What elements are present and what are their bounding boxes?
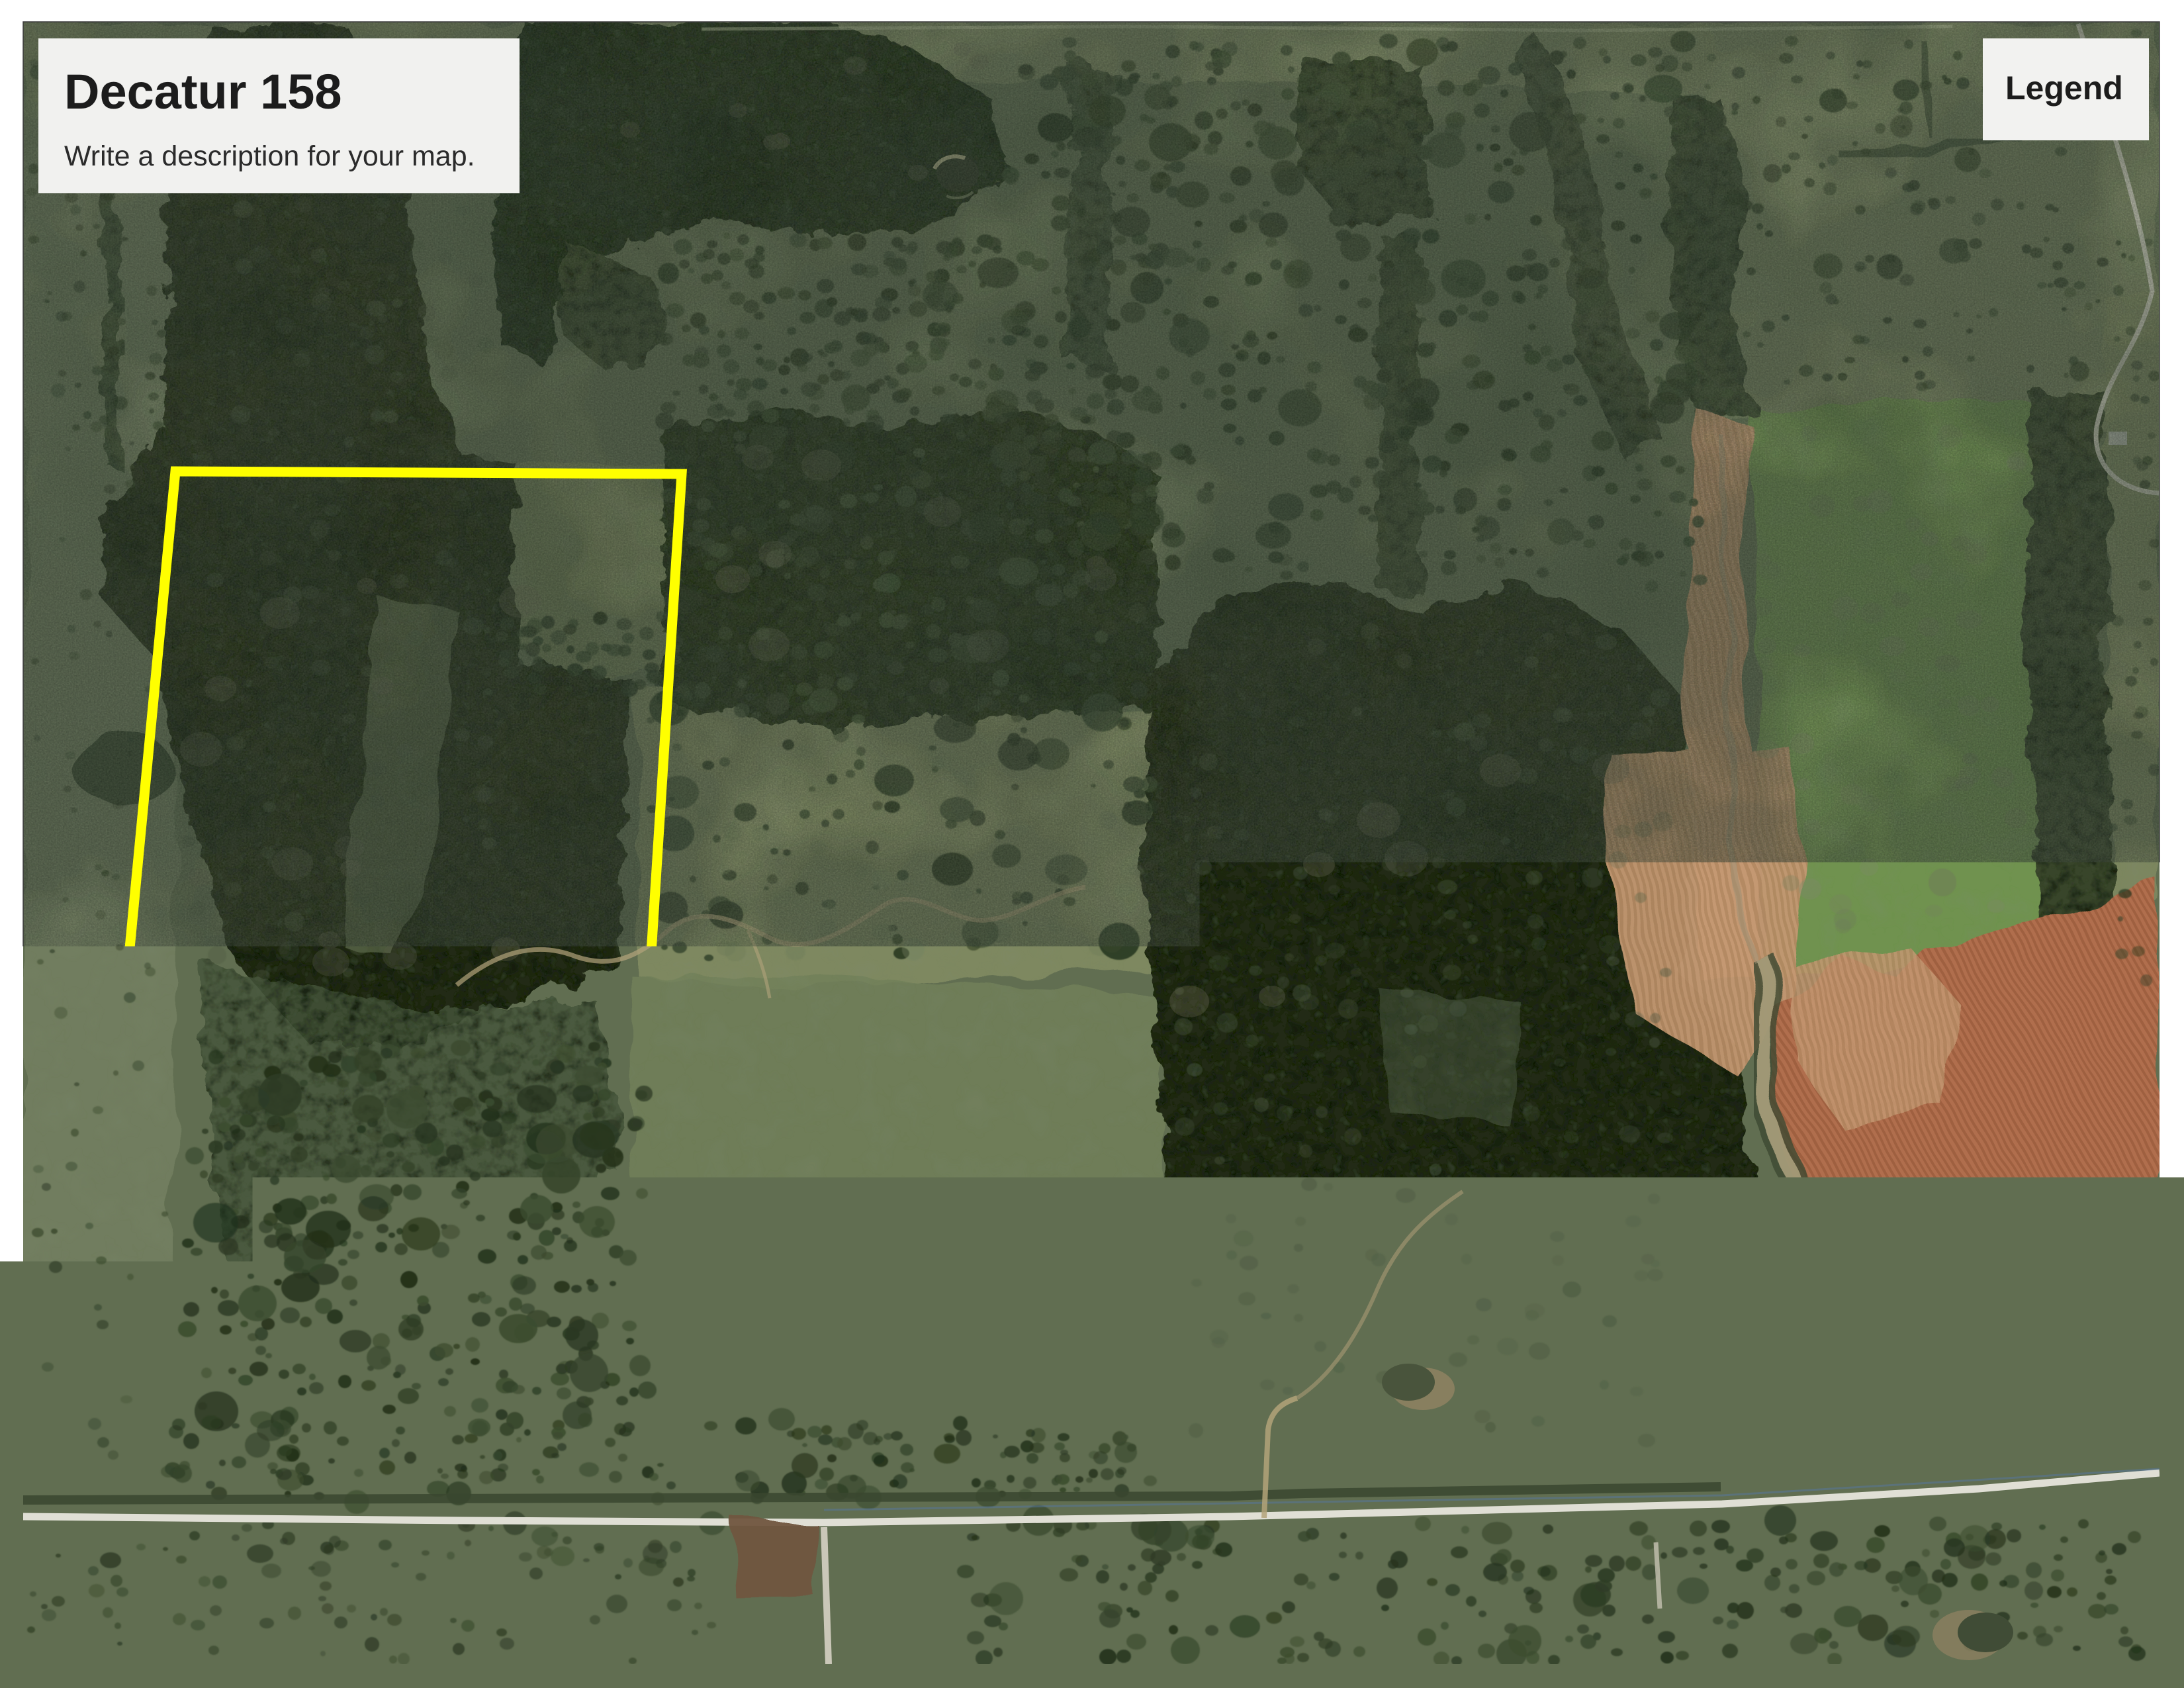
svg-text:Decatur 158: Decatur 158 <box>64 64 342 119</box>
svg-text:Legend: Legend <box>2005 70 2123 107</box>
svg-text:1000 ft: 1000 ft <box>1885 1617 2007 1661</box>
svg-text:Write a description for your m: Write a description for your map. <box>64 140 475 172</box>
svg-text:270th St: 270th St <box>1394 1491 1495 1522</box>
svg-text:© 2021 Google: © 2021 Google <box>30 1632 177 1657</box>
svg-text:Google Earth: Google Earth <box>37 1546 341 1604</box>
svg-text:N: N <box>2053 1540 2105 1620</box>
